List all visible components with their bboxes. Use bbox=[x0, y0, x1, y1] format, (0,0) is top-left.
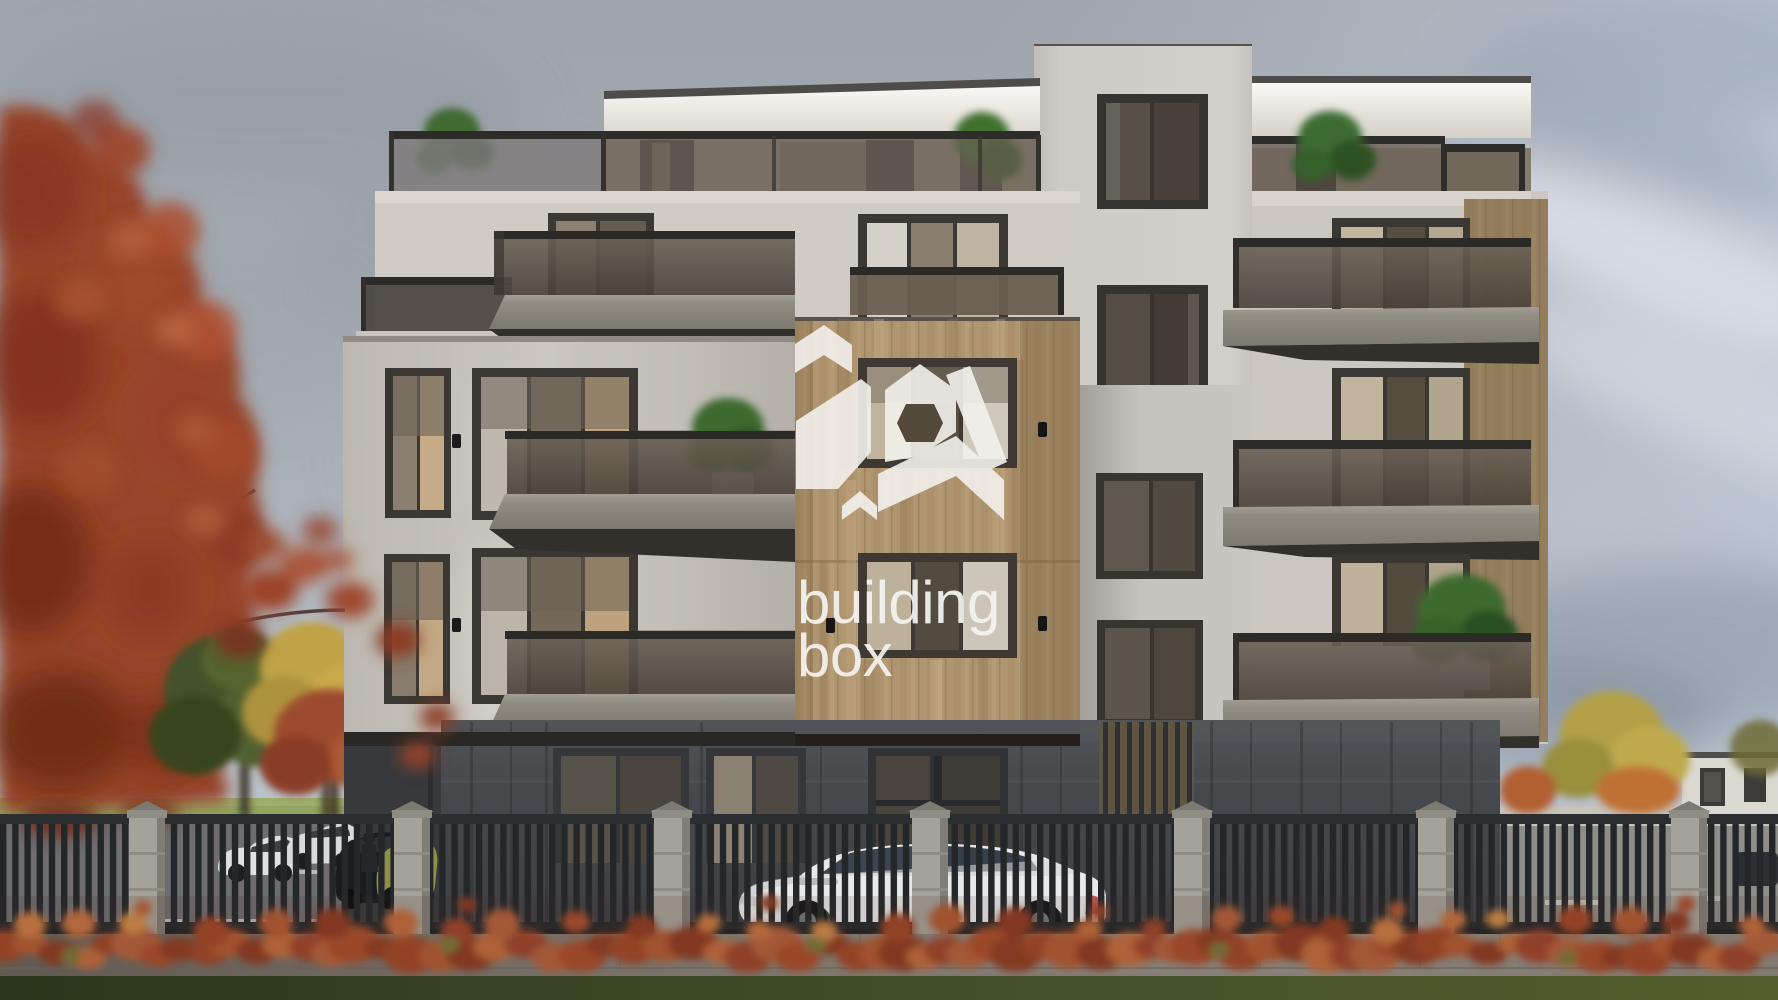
svg-text:box: box bbox=[797, 622, 893, 689]
